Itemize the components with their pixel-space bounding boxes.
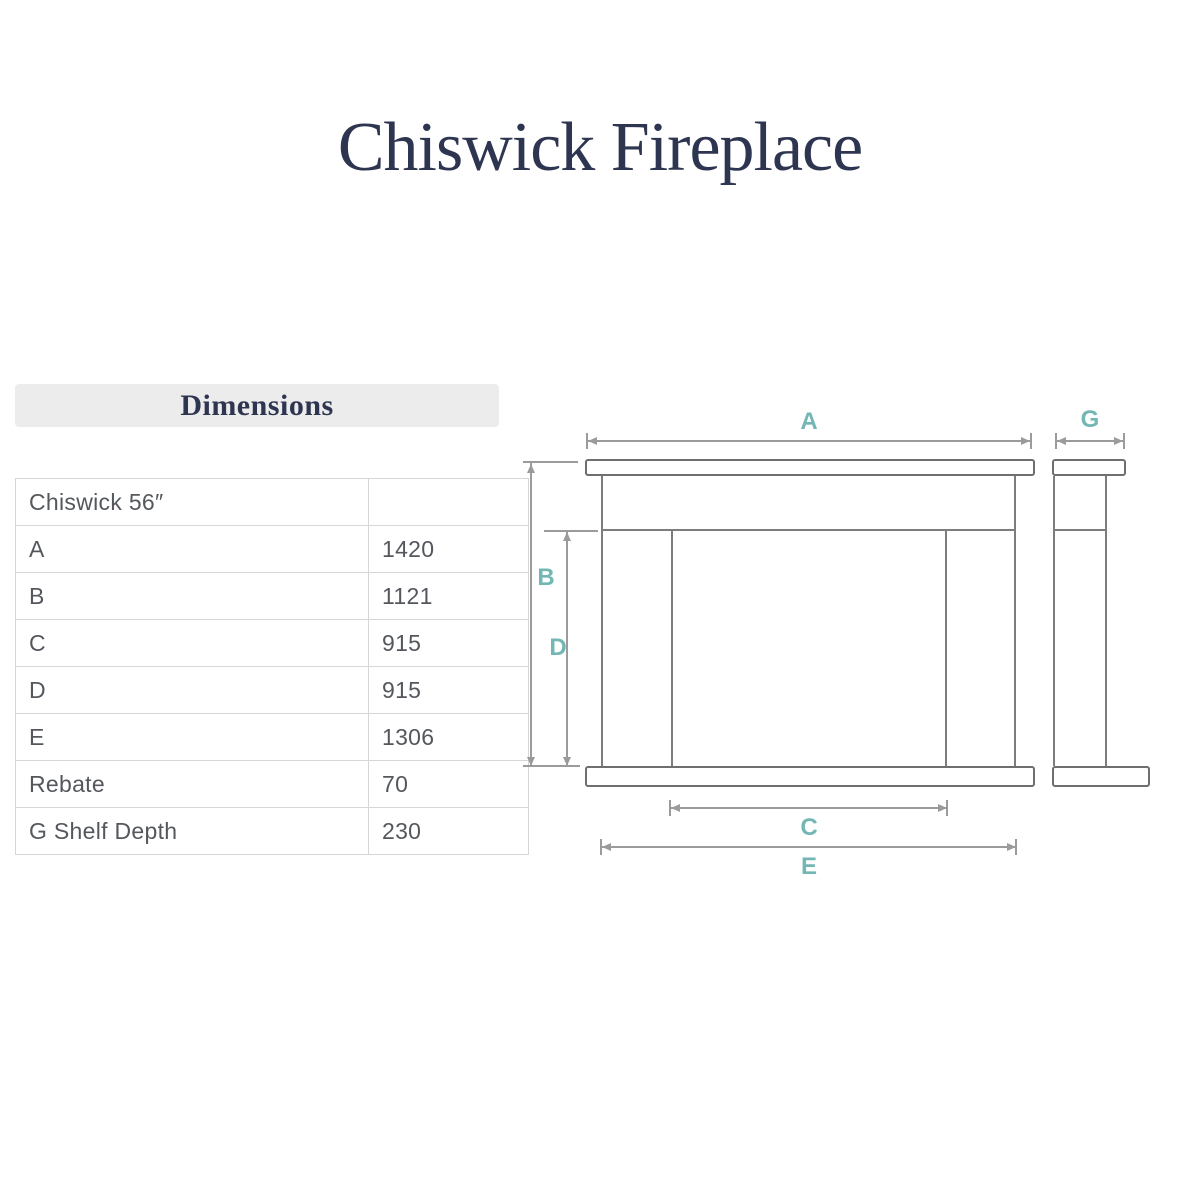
arrowhead-right-icon xyxy=(938,804,947,812)
arrowhead-up-icon xyxy=(527,464,535,473)
front-lintel-line xyxy=(601,529,1016,531)
row-value: 1121 xyxy=(369,573,529,620)
dim-label-c: C xyxy=(671,815,947,841)
table-row: Chiswick 56″ xyxy=(16,479,529,526)
side-lintel-line xyxy=(1053,529,1107,531)
dim-end-tick xyxy=(1123,433,1125,449)
dimensions-header-label: Dimensions xyxy=(180,389,333,423)
dim-line xyxy=(602,846,1016,848)
front-opening-right-line xyxy=(945,529,947,766)
arrowhead-down-icon xyxy=(527,757,535,766)
row-value xyxy=(369,479,529,526)
table-row: G Shelf Depth 230 xyxy=(16,808,529,855)
arrowhead-left-icon xyxy=(671,804,680,812)
dim-label-a: A xyxy=(588,409,1030,435)
dim-label-e: E xyxy=(602,854,1016,880)
row-value: 230 xyxy=(369,808,529,855)
page: Chiswick Fireplace Dimensions Chiswick 5… xyxy=(0,0,1200,1200)
row-label: E xyxy=(16,714,369,761)
dim-label-g: G xyxy=(1057,407,1123,433)
arrowhead-left-icon xyxy=(1057,437,1066,445)
dim-line xyxy=(530,463,532,766)
table-row: E 1306 xyxy=(16,714,529,761)
dimensions-header: Dimensions xyxy=(15,384,499,427)
dim-line xyxy=(671,807,947,809)
row-value: 70 xyxy=(369,761,529,808)
side-column-left-line xyxy=(1053,476,1055,766)
dim-label-d: D xyxy=(545,635,571,661)
arrowhead-right-icon xyxy=(1007,843,1016,851)
dim-line xyxy=(588,440,1030,442)
arrowhead-left-icon xyxy=(588,437,597,445)
row-value: 915 xyxy=(369,620,529,667)
row-value: 1420 xyxy=(369,526,529,573)
table-row: B 1121 xyxy=(16,573,529,620)
side-hearth xyxy=(1052,766,1150,787)
row-label: Rebate xyxy=(16,761,369,808)
table-row: Rebate 70 xyxy=(16,761,529,808)
table-row: C 915 xyxy=(16,620,529,667)
row-label: B xyxy=(16,573,369,620)
arrowhead-right-icon xyxy=(1114,437,1123,445)
table-row: D 915 xyxy=(16,667,529,714)
row-value: 915 xyxy=(369,667,529,714)
front-left-leg-line xyxy=(601,476,603,766)
arrowhead-down-icon xyxy=(563,757,571,766)
arrowhead-right-icon xyxy=(1021,437,1030,445)
front-hearth xyxy=(585,766,1035,787)
front-mantel-shelf xyxy=(585,459,1035,476)
row-label: A xyxy=(16,526,369,573)
dim-end-tick xyxy=(544,530,598,532)
dim-end-tick xyxy=(1030,433,1032,449)
dim-label-b: B xyxy=(533,565,559,591)
table-row: A 1420 xyxy=(16,526,529,573)
row-value: 1306 xyxy=(369,714,529,761)
dimensions-table: Chiswick 56″ A 1420 B 1121 C 915 D 915 E xyxy=(15,478,529,855)
row-label: C xyxy=(16,620,369,667)
row-label: D xyxy=(16,667,369,714)
row-label: Chiswick 56″ xyxy=(16,479,369,526)
side-shelf xyxy=(1052,459,1126,476)
front-opening-left-line xyxy=(671,529,673,766)
arrowhead-left-icon xyxy=(602,843,611,851)
arrowhead-up-icon xyxy=(563,532,571,541)
row-label: G Shelf Depth xyxy=(16,808,369,855)
page-title: Chiswick Fireplace xyxy=(0,108,1200,188)
front-right-leg-line xyxy=(1014,476,1016,766)
side-column-right-line xyxy=(1105,476,1107,766)
